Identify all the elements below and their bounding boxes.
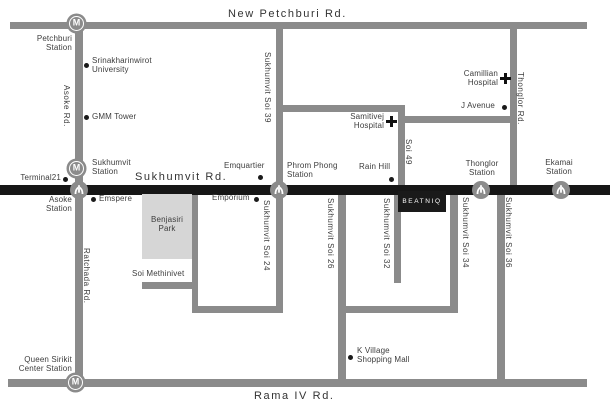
emporium-label: Emporium (212, 194, 250, 203)
road-soi-24 (276, 195, 283, 313)
rain-hill-dot-icon (389, 177, 394, 182)
road-soi-methinivet (142, 282, 198, 289)
camillian-hospital-label: Camillian Hospital (455, 70, 498, 87)
gmm-tower-label: GMM Tower (92, 113, 136, 122)
soi-49-label: Soi 49 (404, 139, 413, 165)
rama-iv-road-label: Rama IV Rd. (254, 390, 335, 402)
road-asoke-ratchada (75, 25, 83, 383)
soi-26-label: Sukhumvit Soi 26 (326, 198, 335, 269)
phrom-phong-station-label: Phrom Phong Station (287, 162, 338, 179)
soi-methinivet-label: Soi Methinivet (132, 270, 184, 279)
road-sukhumvit-main (0, 185, 610, 195)
road-soi-34 (450, 195, 458, 313)
road-soi-26 (338, 195, 346, 385)
benjasiri-park-label: Benjasiri Park (142, 216, 192, 233)
srinakharinwirot-dot-icon (84, 63, 89, 68)
terminal21-label: Terminal21 (13, 174, 61, 183)
road-j-avenue-west (276, 105, 405, 112)
emquartier-label: Emquartier (224, 162, 265, 171)
soi-36-label: Sukhumvit Soi 36 (504, 197, 513, 268)
camillian-cross-icon (500, 73, 511, 84)
emspere-dot-icon (91, 197, 96, 202)
terminal21-dot-icon (63, 177, 68, 182)
road-connector-east (338, 306, 458, 313)
sukhumvit-road-label: Sukhumvit Rd. (135, 171, 227, 183)
samitivej-hospital-label: Samitivej Hospital (340, 113, 384, 130)
ekamai-bts-icon (552, 181, 570, 199)
road-connector-west (192, 306, 283, 313)
soi-34-label: Sukhumvit Soi 34 (461, 197, 470, 268)
asoke-road-label: Asoke Rd. (62, 85, 71, 127)
emquartier-dot-icon (258, 175, 263, 180)
phrom-phong-bts-icon (270, 181, 288, 199)
sukhumvit-mrt-icon: M (69, 161, 84, 176)
road-park-edge (192, 195, 198, 313)
queen-sirikit-mrt-icon: M (68, 375, 83, 390)
soi-32-label: Sukhumvit Soi 32 (382, 198, 391, 269)
samitivej-cross-icon (386, 116, 397, 127)
petchburi-station-label: Petchburi Station (20, 35, 72, 52)
soi-24-label: Sukhumvit Soi 24 (262, 200, 271, 271)
beatniq-logo-text: BEATNIQ (402, 198, 441, 205)
j-avenue-dot-icon (502, 105, 507, 110)
asoke-station-label: Asoke Station (30, 196, 72, 213)
ekamai-station-label: Ekamai Station (536, 159, 582, 176)
asoke-bts-icon (70, 181, 88, 199)
new-petchburi-road-label: New Petchburi Rd. (228, 8, 347, 20)
emspere-label: Emspere (99, 195, 132, 204)
thonglor-bts-icon (472, 181, 490, 199)
k-village-label: K Village Shopping Mall (357, 347, 410, 364)
sukhumvit-station-label: Sukhumvit Station (92, 159, 131, 176)
ratchada-road-label: Ratchada Rd. (82, 248, 91, 304)
rain-hill-label: Rain Hill (359, 163, 390, 172)
mrt-m-letter: M (73, 19, 81, 28)
soi-39-label: Sukhumvit Soi 39 (263, 52, 272, 123)
map-canvas: Benjasiri Park New Petchburi Rd. Sukhumv… (0, 0, 610, 409)
queen-sirikit-station-label: Queen Sirikit Center Station (10, 356, 72, 373)
road-j-avenue-east (398, 116, 517, 123)
k-village-dot-icon (348, 355, 353, 360)
gmm-tower-dot-icon (84, 115, 89, 120)
petchburi-mrt-icon: M (69, 16, 84, 31)
thonglor-station-label: Thonglor Station (458, 160, 506, 177)
mrt-m-letter: M (72, 378, 80, 387)
mrt-m-letter: M (73, 164, 81, 173)
j-avenue-label: J Avenue (461, 102, 495, 111)
emporium-dot-icon (254, 197, 259, 202)
beatniq-logo: BEATNIQ (398, 191, 446, 212)
road-new-petchburi (10, 22, 587, 29)
thonglor-road-label: Thonglor Rd. (516, 72, 525, 125)
srinakharinwirot-label: Srinakharinwirot University (92, 57, 152, 74)
